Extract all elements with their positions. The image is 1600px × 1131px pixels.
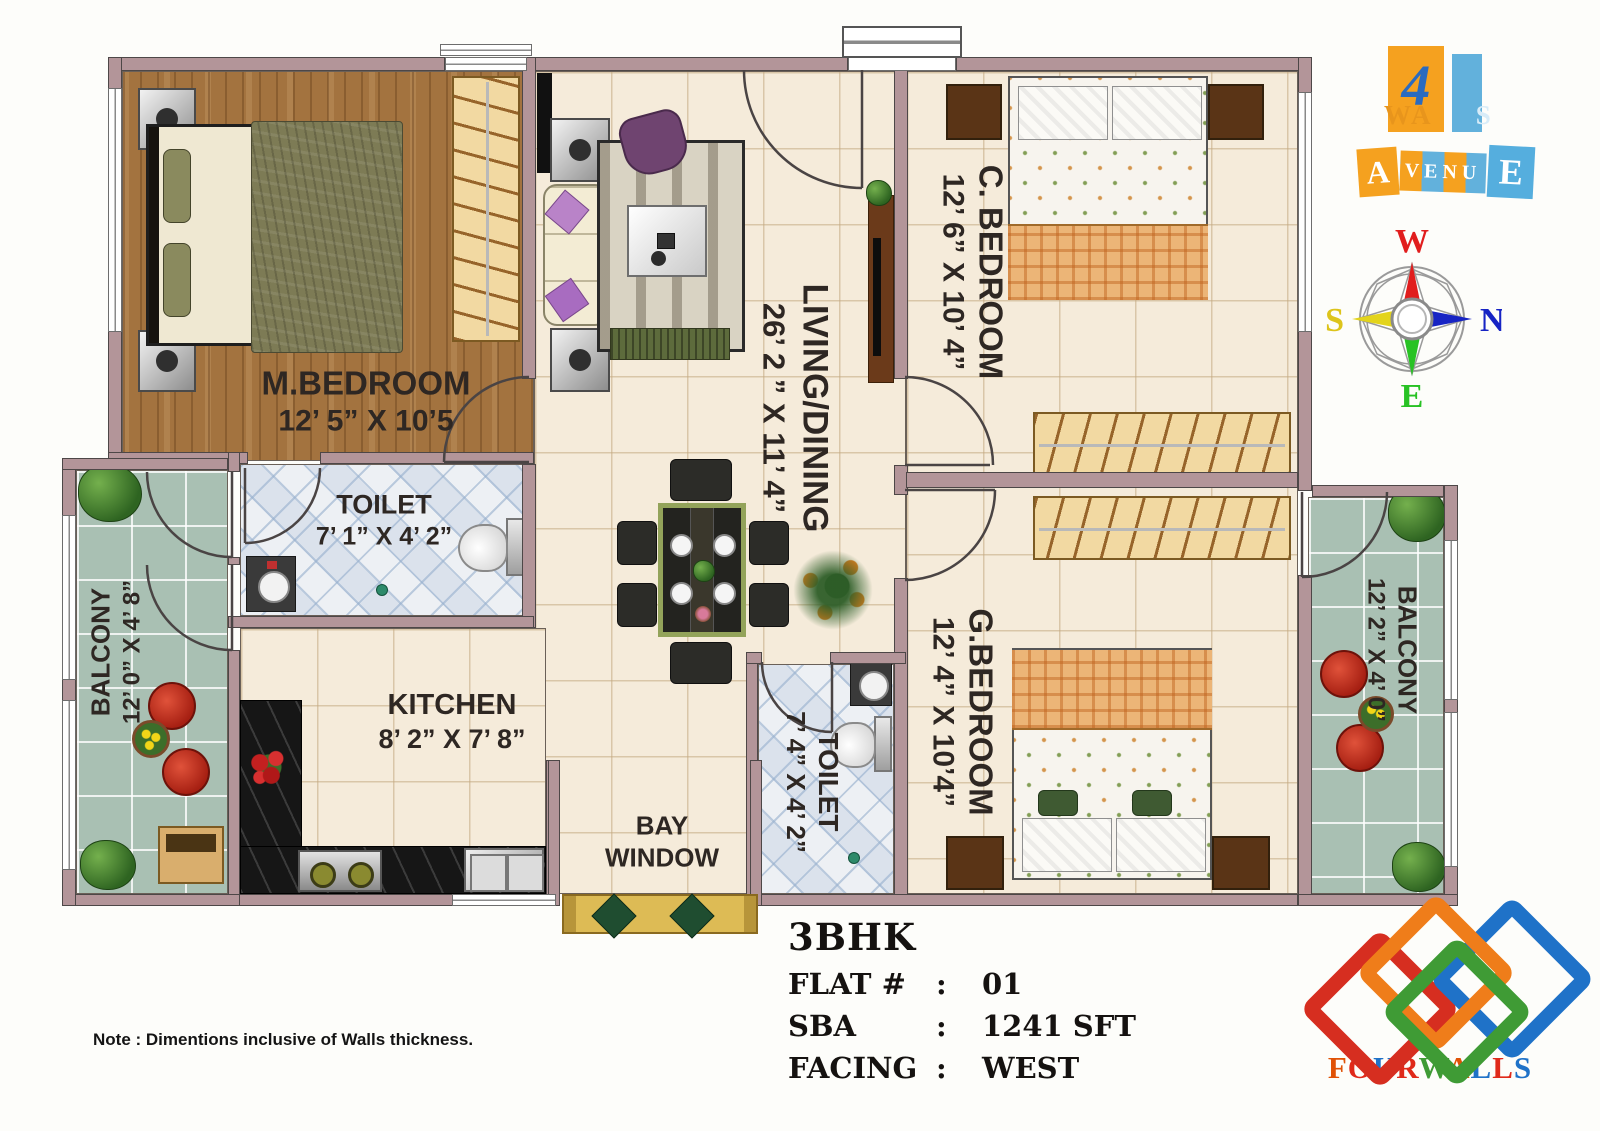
summary-label: FLAT # [788, 967, 936, 1001]
room-name: M.BEDROOM [262, 365, 471, 402]
summary-colon: : [936, 967, 982, 1001]
summary-colon: : [936, 1009, 982, 1043]
room-dims: 7’ 1” X 4’ 2” [316, 521, 452, 552]
label-balcony-left: BALCONY 12’ 0” X 4’ 8” [86, 580, 147, 724]
logo-walls-wa: WA [1384, 100, 1432, 130]
room-dims: 12’ 0” X 4’ 8” [117, 580, 146, 724]
door-gbedroom [905, 490, 995, 580]
summary-value: WEST [982, 1051, 1079, 1085]
summary-row-flat: FLAT # : 01 [788, 967, 1136, 1001]
fourwalls-logo: FOURWALLS [1295, 900, 1565, 1085]
room-dims: 26’ 2 ” X 11’ 4” [755, 284, 793, 533]
room-dims: 12’ 4” X 10’4” [924, 608, 961, 815]
room-name: G.BEDROOM [962, 608, 999, 815]
logo-walls-s: S [1476, 100, 1494, 130]
room-name: TOILET [813, 732, 844, 831]
label-g-bedroom: G.BEDROOM 12’ 4” X 10’4” [924, 608, 1001, 815]
footnote: Note : Dimentions inclusive of Walls thi… [93, 1030, 473, 1050]
summary-label: SBA [788, 1009, 936, 1043]
logo-avenue-a: A [1356, 147, 1399, 198]
compass-letter-s: S [1325, 302, 1344, 339]
door-balcony-right [1302, 492, 1387, 577]
label-living-dining: LIVING/DINING 26’ 2 ” X 11’ 4” [755, 284, 836, 533]
door-toilet1 [245, 468, 320, 543]
label-toilet-2: TOILET 7’ 4” X 4’ 2” [779, 711, 845, 853]
flat-summary: 3BHK FLAT # : 01 SBA : 1241 SFT FACING :… [788, 915, 1136, 1085]
summary-colon: : [936, 1051, 982, 1085]
label-balcony-right: BALCONY 12’ 2” X 4’ 0” [1362, 578, 1423, 722]
room-name: BALCONY [1392, 586, 1422, 715]
room-name: TOILET [336, 489, 432, 519]
room-name: C. BEDROOM [972, 165, 1009, 380]
label-kitchen: KITCHEN 8’ 2” X 7’ 8” [378, 688, 525, 756]
door-entrance [744, 70, 862, 188]
summary-label: FACING [788, 1051, 936, 1085]
door-balcony-left-1 [147, 472, 232, 557]
four-walls-avenue-logo: 4 WA S A VENU E [1358, 38, 1538, 208]
logo-avenue-row: A VENU E [1358, 146, 1538, 198]
summary-value: 1241 SFT [982, 1009, 1136, 1043]
door-cbedroom [905, 377, 993, 465]
label-toilet-1: TOILET 7’ 1” X 4’ 2” [316, 488, 452, 551]
room-dims: 12’ 6” X 10’ 4” [934, 165, 971, 380]
summary-row-sba: SBA : 1241 SFT [788, 1009, 1136, 1043]
logo-avenue-e: E [1487, 145, 1536, 199]
room-dims: 7’ 4” X 4’ 2” [779, 711, 811, 853]
room-name: BALCONY [86, 588, 116, 717]
room-dims: 12’ 2” X 4’ 0” [1362, 578, 1391, 722]
label-m-bedroom: M.BEDROOM 12’ 5” X 10’5 [262, 364, 471, 441]
label-bay-window: BAY WINDOW [605, 810, 719, 873]
compass-letter-w: W [1395, 223, 1429, 260]
compass-letter-e: E [1401, 378, 1424, 412]
room-dims: 8’ 2” X 7’ 8” [378, 723, 525, 756]
door-balcony-left-2 [147, 565, 232, 650]
summary-row-facing: FACING : WEST [788, 1051, 1136, 1085]
label-c-bedroom: C. BEDROOM 12’ 6” X 10’ 4” [934, 165, 1011, 380]
room-name: LIVING/DINING [795, 284, 834, 533]
compass-rose: W N S E [1322, 222, 1502, 412]
room-name-2: WINDOW [605, 842, 719, 874]
logo-avenue-mid: VENU [1399, 151, 1486, 194]
logo-walls-text: WA S [1384, 100, 1494, 131]
compass-letter-n: N [1480, 302, 1502, 339]
floor-plan-canvas: M.BEDROOM 12’ 5” X 10’5 TOILET 7’ 1” X 4… [0, 0, 1600, 1131]
room-name: BAY [636, 810, 689, 840]
summary-value: 01 [982, 967, 1022, 1001]
room-dims: 12’ 5” X 10’5 [262, 404, 471, 441]
flat-type: 3BHK [788, 915, 1136, 959]
room-name: KITCHEN [388, 689, 517, 721]
